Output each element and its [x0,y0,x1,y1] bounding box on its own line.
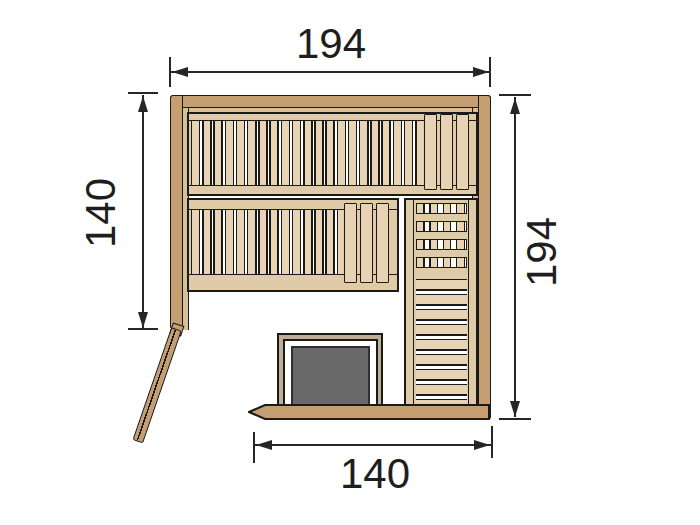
dim-bottom-tick-right [491,426,493,458]
upper-bench-slats [191,121,423,185]
dim-left-label: 140 [79,173,123,253]
right-wall [478,95,491,420]
dim-top-label: 194 [296,22,366,66]
lower-bench-slat-area [189,209,397,275]
side-bench-interior [416,203,467,403]
dim-left-line [142,95,144,329]
dim-right-tick-top [499,94,531,96]
dim-right-arrow-down-icon [510,401,520,417]
dim-right-arrow-up-icon [510,98,520,114]
upper-bench-slat-area [189,120,476,186]
left-wall [170,95,183,328]
dim-left-arrow-down-icon [138,312,148,328]
lower-bench [187,198,399,292]
headrest-board [440,114,453,190]
dim-top-arrow-left-icon [172,67,188,77]
lower-bench-slats [191,210,343,274]
bottom-wall [248,404,491,420]
headrest-board [360,203,373,283]
dim-right-line [514,97,516,417]
headrest-board [376,203,389,283]
dim-top-line [171,71,490,73]
top-wall [170,95,491,108]
dim-bottom-tick-left [253,432,255,463]
dim-bottom-label: 140 [340,452,410,496]
dim-bottom-arrow-right-icon [474,440,490,450]
dim-left-arrow-up-icon [138,96,148,112]
dim-bottom-line [255,444,491,446]
headrest-board [424,114,437,190]
dim-right-tick-bottom [499,418,531,420]
side-bench-grate-slat [416,203,467,214]
upper-bench-headrest [424,114,469,190]
side-bench-slats [416,279,467,403]
dim-right-label: 194 [520,212,564,292]
door-leaf [133,327,182,443]
lower-bench-headrest [344,203,389,283]
dim-left-tick-top [128,92,158,94]
side-bench-left-rail [406,200,414,406]
sauna-floor-plan: 194 140 194 140 [0,0,700,525]
side-bench [404,198,478,408]
side-bench-grate-slat [416,221,467,232]
upper-bench [187,112,478,196]
dim-bottom-arrow-left-icon [256,440,272,450]
side-bench-right-rail [468,200,476,406]
headrest-board [456,114,469,190]
side-bench-grate-slat [416,257,467,268]
side-bench-grate-slat [416,239,467,250]
headrest-board [344,203,357,283]
heater [291,346,370,406]
dim-top-arrow-right-icon [473,67,489,77]
